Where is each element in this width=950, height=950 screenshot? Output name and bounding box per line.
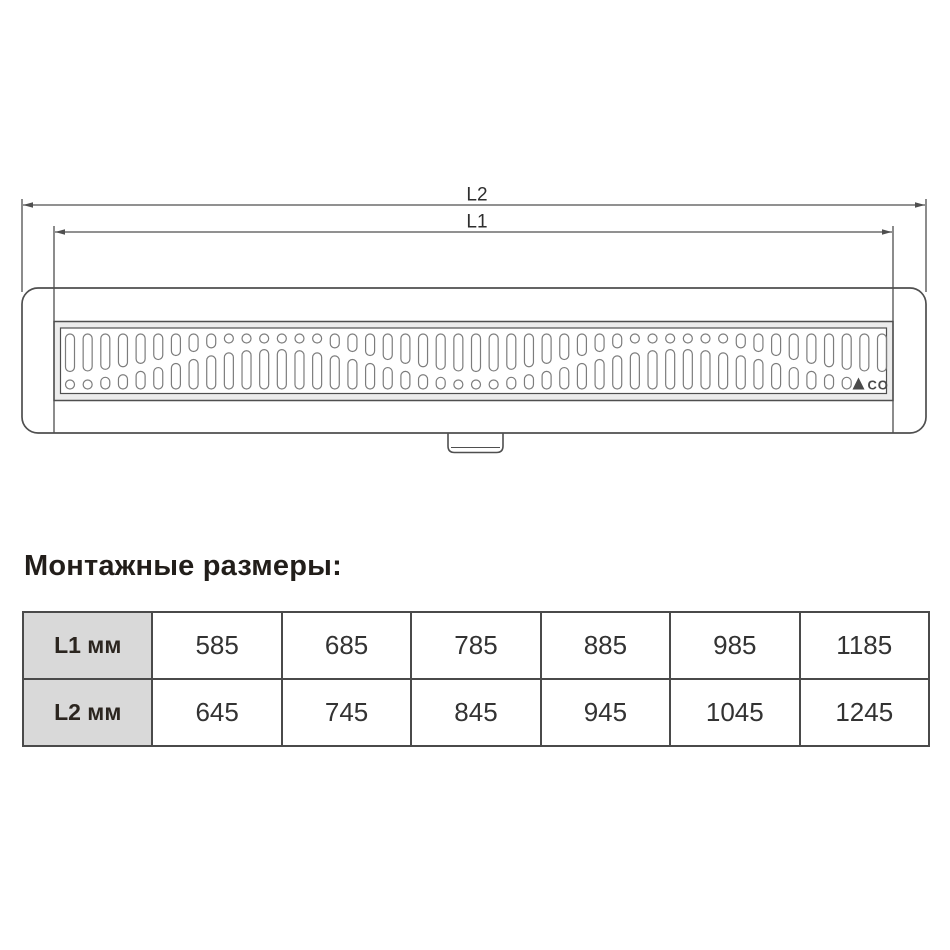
dimension-value-cell: 985 [670, 612, 799, 679]
dimension-value-cell: 885 [541, 612, 670, 679]
technical-drawing: COL2L1 [0, 0, 950, 530]
logo-text: CO [868, 378, 889, 393]
dimension-l2-label: L2 [466, 185, 487, 206]
section-title: Монтажные размеры: [24, 550, 342, 583]
dimension-value-cell: 685 [282, 612, 411, 679]
table-row-l2: L2 мм 645 745 845 945 1045 1245 [23, 679, 929, 746]
dimension-value-cell: 585 [152, 612, 281, 679]
dimension-value-cell: 785 [411, 612, 540, 679]
dimension-l1-label: L1 [466, 212, 487, 233]
table-row-l1: L1 мм 585 685 785 885 985 1185 [23, 612, 929, 679]
dimension-value-cell: 845 [411, 679, 540, 746]
drain-outlet [448, 433, 503, 453]
dimension-value-cell: 745 [282, 679, 411, 746]
page: COL2L1 Монтажные размеры: L1 мм 585 685 … [0, 0, 950, 950]
dimension-value-cell: 1185 [800, 612, 929, 679]
dimension-l2: L2 [22, 185, 926, 293]
dimension-value-cell: 1045 [670, 679, 799, 746]
dimension-value-cell: 945 [541, 679, 670, 746]
dimension-value-cell: 645 [152, 679, 281, 746]
row-label-cell: L1 мм [23, 612, 152, 679]
dimension-value-cell: 1245 [800, 679, 929, 746]
row-label-cell: L2 мм [23, 679, 152, 746]
dimensions-table: L1 мм 585 685 785 885 985 1185 L2 мм 645… [22, 611, 930, 747]
